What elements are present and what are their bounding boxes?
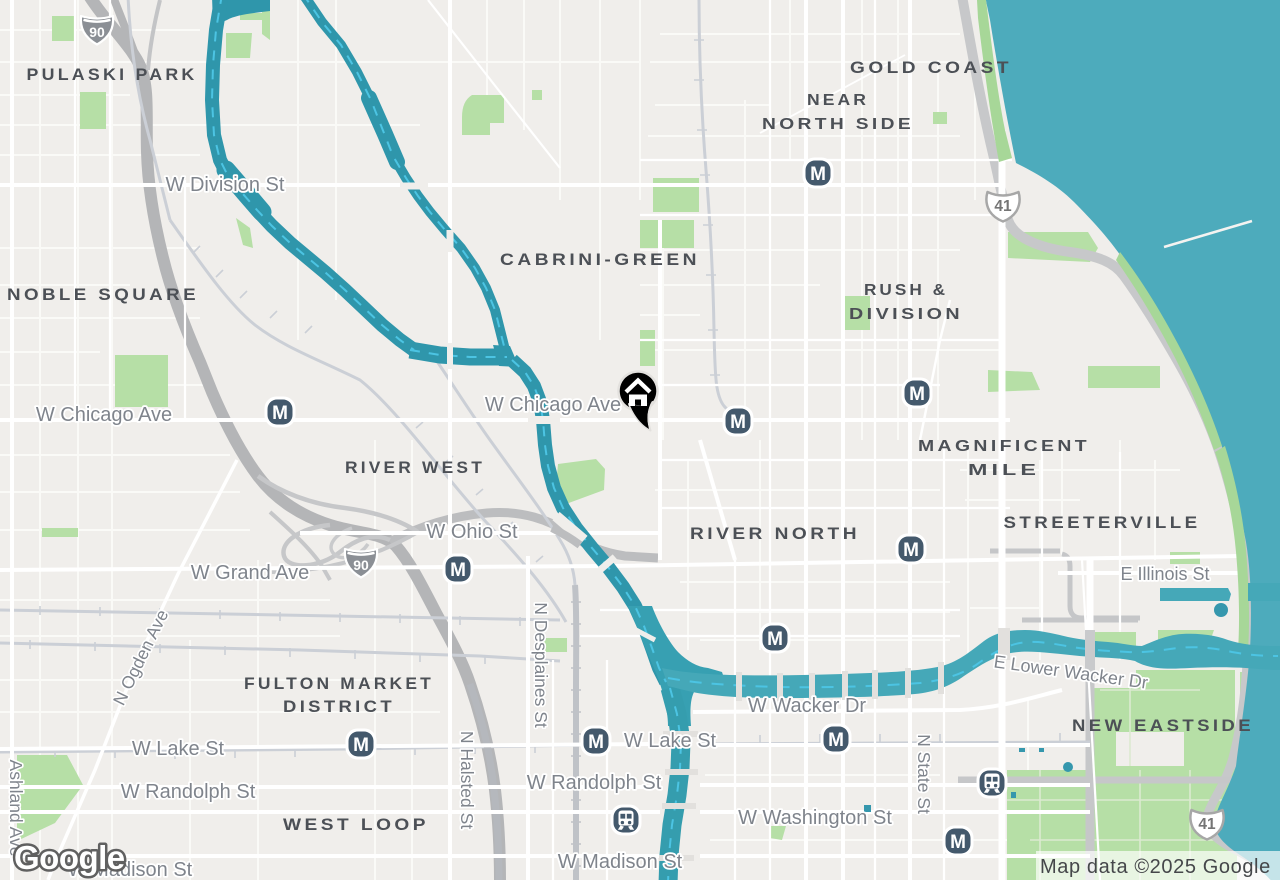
svg-text:WEST LOOP: WEST LOOP [283,815,429,834]
svg-text:W Chicago Ave: W Chicago Ave [485,394,621,416]
svg-text:NEAR: NEAR [807,92,869,109]
svg-text:FULTON MARKET: FULTON MARKET [244,674,434,693]
svg-text:N Halsted St: N Halsted St [457,731,477,829]
svg-text:CABRINI-GREEN: CABRINI-GREEN [500,250,700,269]
svg-text:W Randolph St: W Randolph St [121,781,256,803]
svg-text:W Chicago Ave: W Chicago Ave [36,404,172,426]
svg-text:NEW EASTSIDE: NEW EASTSIDE [1072,716,1254,735]
svg-text:PULASKI PARK: PULASKI PARK [27,65,198,84]
svg-text:GOLD COAST: GOLD COAST [850,58,1012,77]
svg-text:RIVER NORTH: RIVER NORTH [690,524,860,543]
svg-text:W Ohio St: W Ohio St [426,521,518,543]
svg-text:STREETERVILLE: STREETERVILLE [1004,513,1201,532]
svg-text:W Randolph St: W Randolph St [527,772,662,794]
svg-text:W Washington St: W Washington St [738,807,892,829]
svg-text:W Grand Ave: W Grand Ave [191,562,310,584]
svg-text:DIVISION: DIVISION [849,306,963,323]
svg-text:Map data ©2025 Google: Map data ©2025 Google [1040,856,1271,878]
svg-text:W Lake St: W Lake St [624,730,717,752]
svg-text:N Desplaines St: N Desplaines St [531,602,551,728]
svg-text:E Illinois St: E Illinois St [1120,564,1209,584]
svg-text:W Lake St: W Lake St [132,738,225,760]
svg-text:W Division St: W Division St [166,174,285,196]
svg-text:MILE: MILE [968,462,1040,479]
svg-text:W Wacker Dr: W Wacker Dr [748,695,866,717]
svg-text:NORTH SIDE: NORTH SIDE [762,116,914,133]
svg-text:RIVER WEST: RIVER WEST [345,458,485,477]
svg-text:W Madison St: W Madison St [558,851,683,873]
svg-text:DISTRICT: DISTRICT [283,697,395,716]
svg-text:RUSH &: RUSH & [864,282,948,299]
svg-text:NOBLE SQUARE: NOBLE SQUARE [7,285,199,304]
svg-text:N State St: N State St [914,734,934,814]
svg-text:Google: Google [14,839,125,876]
svg-text:MAGNIFICENT: MAGNIFICENT [918,438,1090,455]
